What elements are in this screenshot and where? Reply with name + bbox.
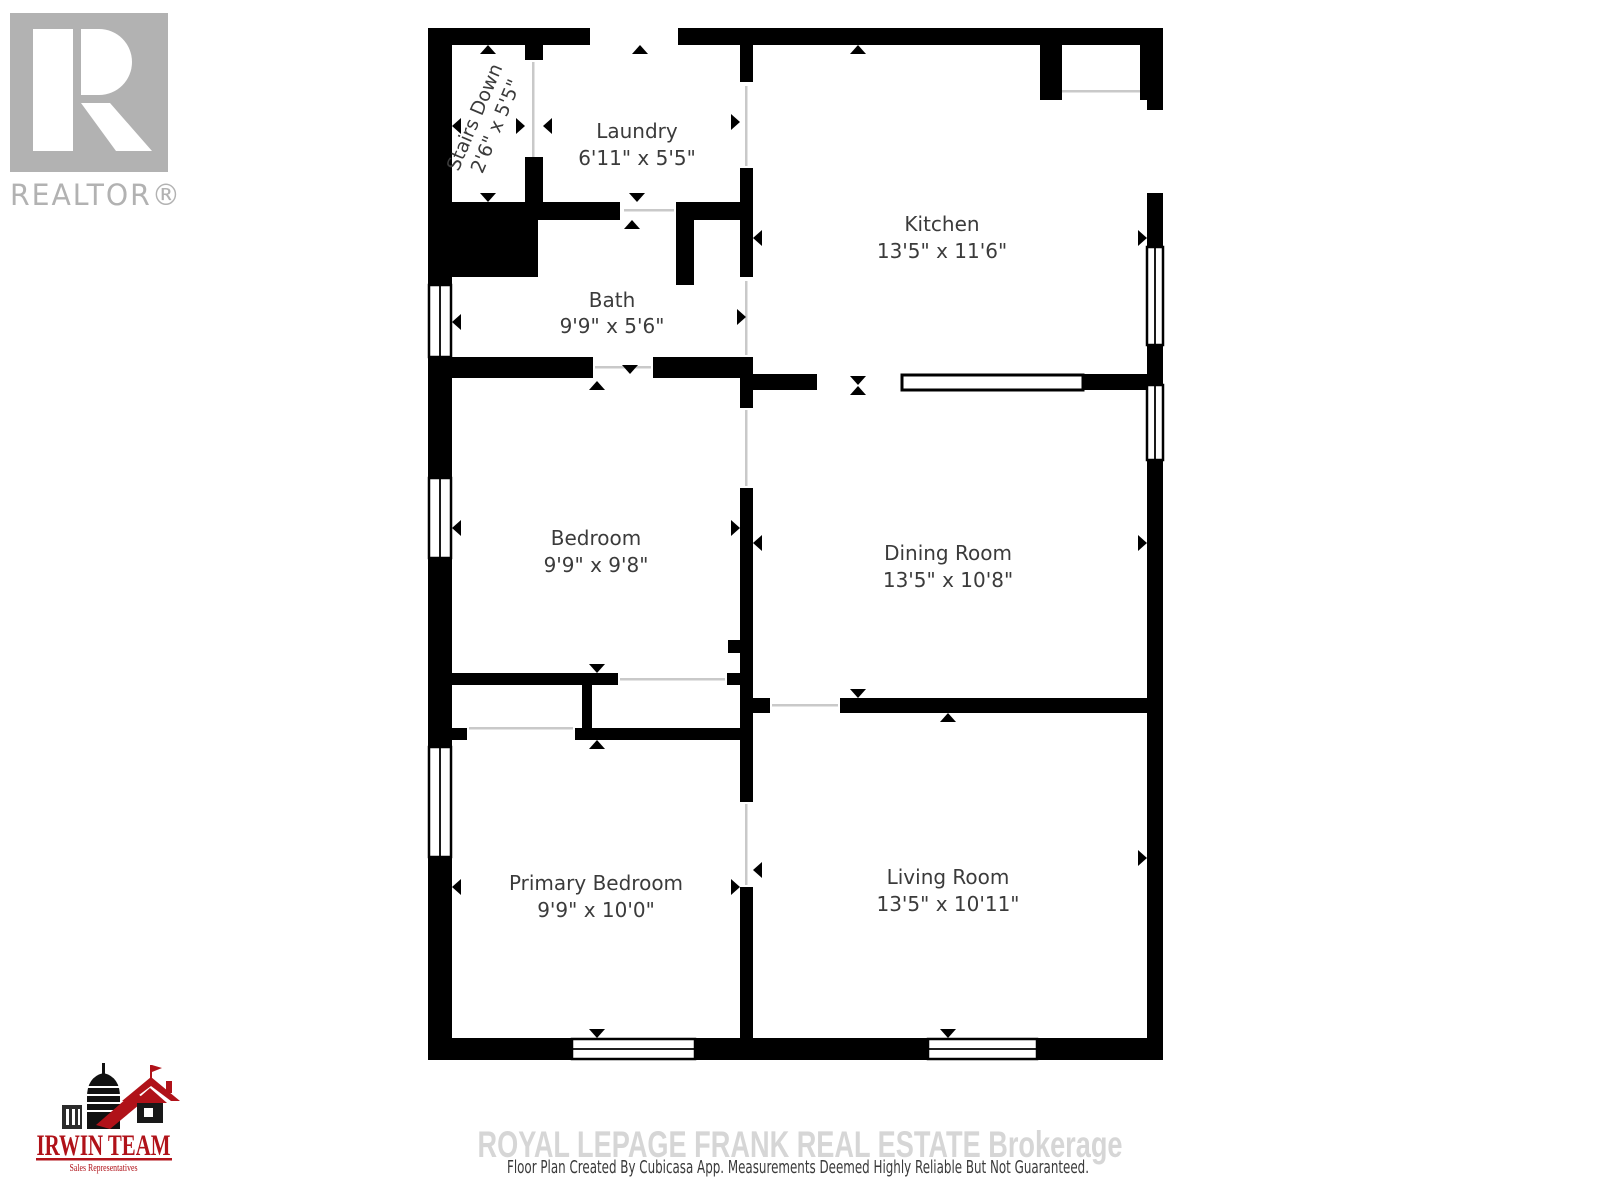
irwin-title: IRWIN TEAM <box>37 1129 171 1162</box>
footer: ROYAL LEPAGE FRANK REAL ESTATE Brokerage… <box>478 1124 1123 1178</box>
irwin-team-logo: IRWIN TEAM Sales Representatives <box>36 1063 180 1174</box>
window-bedroom <box>429 478 451 558</box>
room-label-dining: Dining Room 13'5" x 10'8" <box>883 541 1013 592</box>
floor-plan: Stairs Down 2'6" x 5'5" Laundry 6'11" x … <box>428 28 1163 1060</box>
kitchen-counter <box>902 375 1083 390</box>
svg-text:13'5" x 11'6": 13'5" x 11'6" <box>877 239 1007 263</box>
svg-text:Primary Bedroom: Primary Bedroom <box>509 871 683 895</box>
room-label-stairs: Stairs Down 2'6" x 5'5" <box>443 61 529 184</box>
irwin-buildings-icon <box>62 1063 180 1129</box>
room-label-bath: Bath 9'9" x 5'6" <box>560 288 665 338</box>
window-bath <box>429 285 451 357</box>
floor-plan-canvas: REALTOR® <box>0 0 1600 1200</box>
window-living <box>928 1039 1037 1059</box>
window-kitchen <box>1147 247 1163 345</box>
svg-text:Dining Room: Dining Room <box>884 541 1012 565</box>
svg-text:Bath: Bath <box>589 288 636 312</box>
disclaimer-text: Floor Plan Created By Cubicasa App. Meas… <box>507 1157 1089 1178</box>
room-label-bedroom: Bedroom 9'9" x 9'8" <box>544 526 649 577</box>
svg-text:13'5" x 10'11": 13'5" x 10'11" <box>876 892 1019 916</box>
room-label-living: Living Room 13'5" x 10'11" <box>876 865 1019 916</box>
window-primary-left <box>429 747 451 857</box>
svg-text:13'5" x 10'8": 13'5" x 10'8" <box>883 568 1013 592</box>
svg-text:Laundry: Laundry <box>596 119 678 143</box>
svg-text:9'9" x 10'0": 9'9" x 10'0" <box>537 898 655 922</box>
svg-text:Bedroom: Bedroom <box>551 526 641 550</box>
room-label-primary: Primary Bedroom 9'9" x 10'0" <box>509 871 683 922</box>
realtor-wordmark: REALTOR® <box>10 178 182 212</box>
svg-text:9'9" x 5'6": 9'9" x 5'6" <box>560 314 665 338</box>
svg-text:6'11" x 5'5": 6'11" x 5'5" <box>578 146 696 170</box>
irwin-underline <box>36 1158 172 1161</box>
room-label-kitchen: Kitchen 13'5" x 11'6" <box>877 212 1007 263</box>
door-openings <box>469 62 1140 885</box>
svg-text:Kitchen: Kitchen <box>904 212 979 236</box>
irwin-subtitle: Sales Representatives <box>70 1163 138 1174</box>
window-primary-bottom <box>572 1039 695 1059</box>
room-label-laundry: Laundry 6'11" x 5'5" <box>578 119 696 170</box>
realtor-logo: REALTOR® <box>10 13 182 212</box>
floor-plan-page: REALTOR® <box>0 0 1600 1200</box>
svg-text:Living Room: Living Room <box>887 865 1010 889</box>
svg-text:9'9" x 9'8": 9'9" x 9'8" <box>544 553 649 577</box>
window-dining <box>1147 385 1163 460</box>
